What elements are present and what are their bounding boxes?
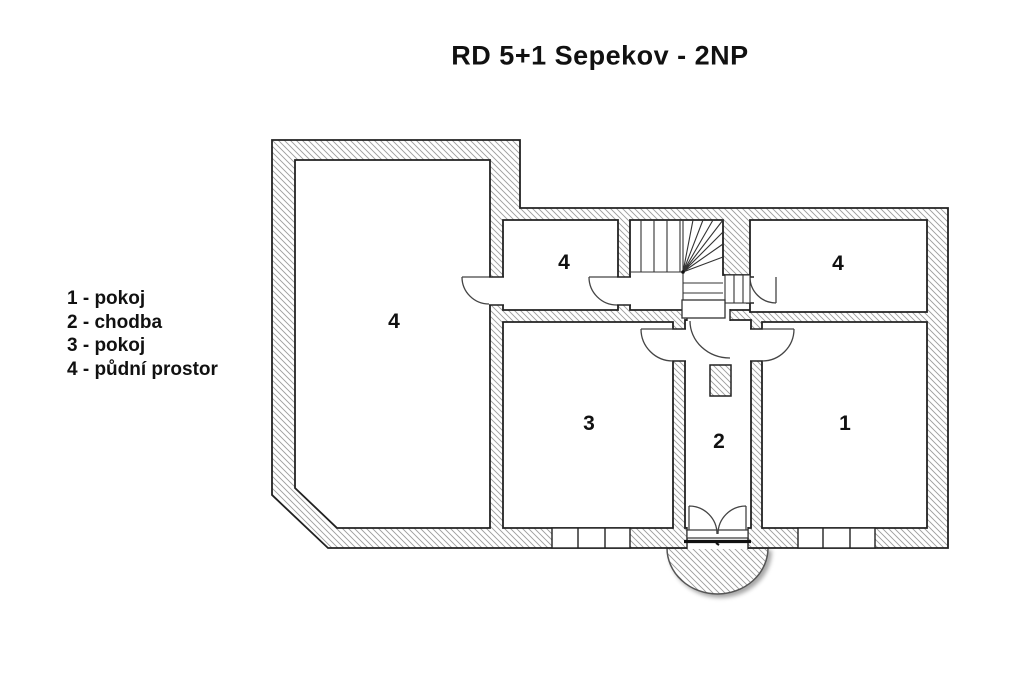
stair-landing-step	[682, 300, 725, 318]
legend-item-3: 3 - pokoj	[67, 334, 218, 358]
legend-item-2: 2 - chodba	[67, 311, 218, 335]
chimney	[710, 365, 731, 396]
room-label-corridor: 2	[713, 430, 725, 454]
room-label-attic-right: 4	[832, 252, 844, 276]
stair-steps-to-room4-right	[725, 275, 750, 303]
room-label-room1: 1	[839, 412, 851, 436]
page-title: RD 5+1 Sepekov - 2NP	[451, 41, 748, 72]
walls	[272, 140, 948, 548]
floor-plan-page: RD 5+1 Sepekov - 2NP 1 - pokoj 2 - chodb…	[0, 0, 1024, 683]
porch-semicircle	[667, 548, 768, 594]
legend: 1 - pokoj 2 - chodba 3 - pokoj 4 - půdní…	[67, 287, 218, 381]
door-stairs-to-corridor	[690, 321, 730, 358]
door-corridor-to-room1	[762, 329, 794, 361]
room-label-attic-middle: 4	[558, 251, 570, 275]
door-bigroom4-to-room4	[462, 277, 489, 304]
door-room4-to-stairs	[589, 277, 617, 305]
legend-item-4: 4 - půdní prostor	[67, 358, 218, 382]
door-corridor-to-room3	[641, 329, 673, 361]
room-label-attic-left: 4	[388, 310, 400, 334]
legend-item-1: 1 - pokoj	[67, 287, 218, 311]
room-label-room3: 3	[583, 412, 595, 436]
